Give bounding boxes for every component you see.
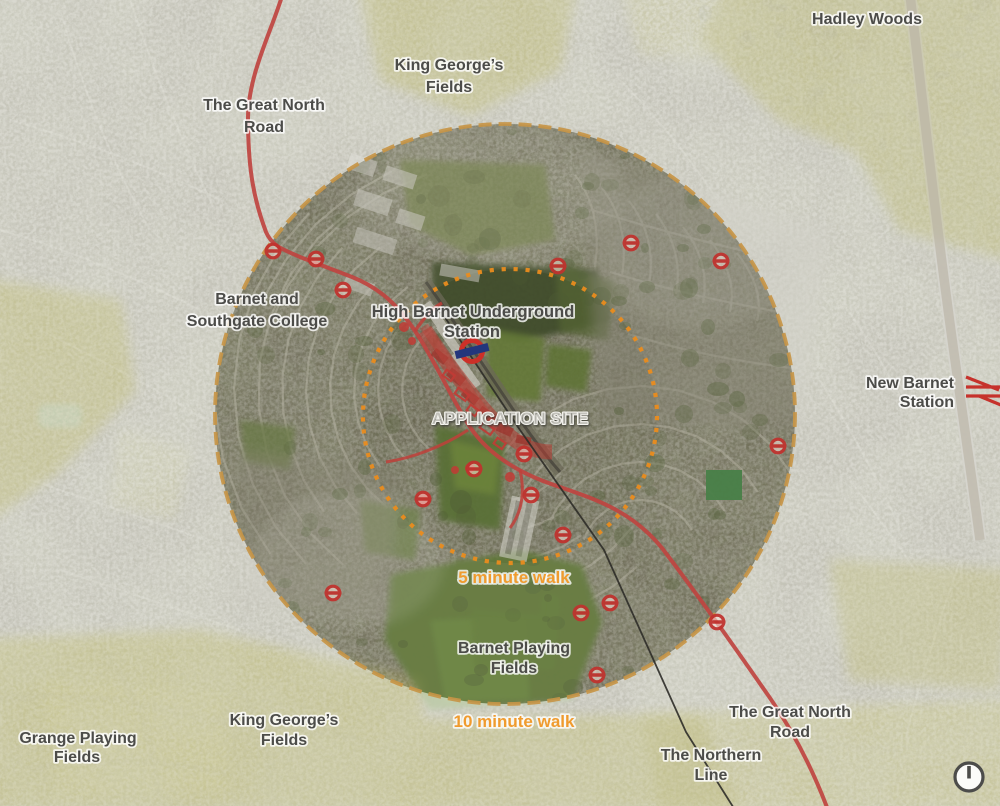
svg-text:5 minute walk: 5 minute walk <box>458 568 570 587</box>
svg-text:Station: Station <box>444 323 500 341</box>
svg-text:Line: Line <box>695 767 728 784</box>
svg-text:New Barnet: New Barnet <box>866 375 955 392</box>
svg-text:Fields: Fields <box>491 660 537 677</box>
svg-text:The Northern: The Northern <box>661 747 761 764</box>
svg-text:Road: Road <box>244 119 284 136</box>
svg-text:Grange Playing: Grange Playing <box>19 730 136 747</box>
svg-text:APPLICATION SITE: APPLICATION SITE <box>432 409 588 428</box>
svg-text:Hadley Woods: Hadley Woods <box>812 11 922 28</box>
svg-text:10 minute walk: 10 minute walk <box>454 712 575 731</box>
svg-text:High Barnet Underground: High Barnet Underground <box>372 303 575 321</box>
svg-text:The Great North: The Great North <box>729 704 851 721</box>
svg-text:Fields: Fields <box>54 749 100 766</box>
svg-text:Station: Station <box>900 394 954 411</box>
svg-text:King George’s: King George’s <box>230 712 339 729</box>
svg-text:Fields: Fields <box>426 79 472 96</box>
svg-text:King George’s: King George’s <box>395 57 504 74</box>
svg-text:Road: Road <box>770 724 810 741</box>
svg-text:Fields: Fields <box>261 732 307 749</box>
svg-text:Barnet Playing: Barnet Playing <box>458 640 570 657</box>
svg-text:Southgate College: Southgate College <box>187 313 328 330</box>
svg-text:Barnet and: Barnet and <box>215 291 299 308</box>
svg-text:The Great North: The Great North <box>203 97 325 114</box>
